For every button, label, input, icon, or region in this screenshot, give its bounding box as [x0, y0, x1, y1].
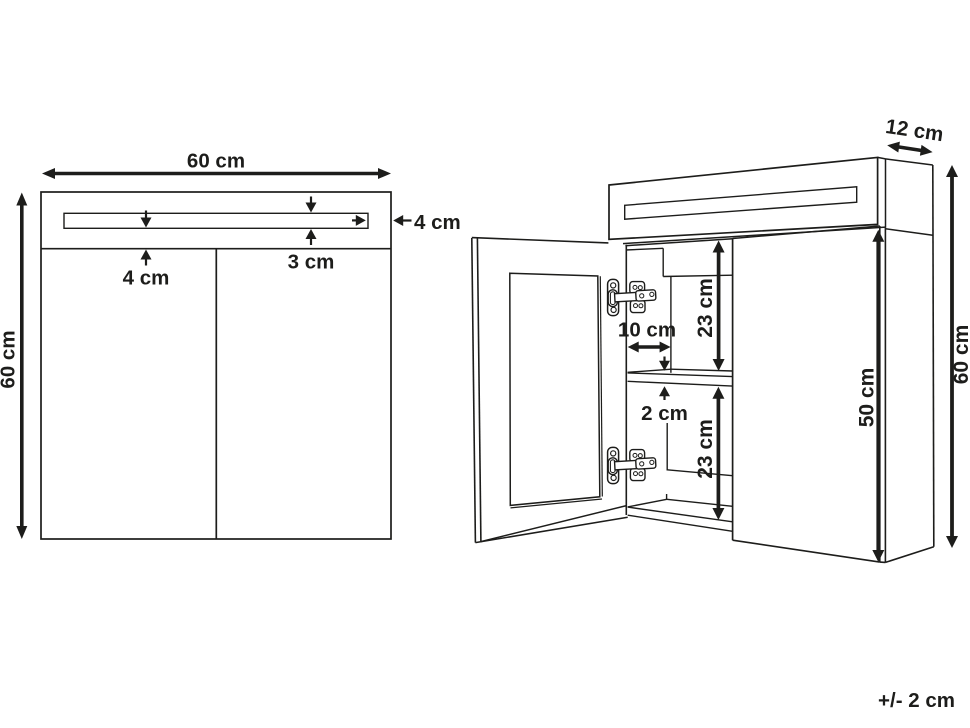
svg-text:2 cm: 2 cm — [641, 402, 688, 425]
svg-text:50 cm: 50 cm — [856, 368, 879, 428]
svg-text:60 cm: 60 cm — [187, 150, 245, 173]
svg-text:23 cm: 23 cm — [694, 419, 717, 479]
svg-text:+/- 2 cm: +/- 2 cm — [878, 689, 955, 712]
svg-text:60 cm: 60 cm — [0, 330, 20, 388]
svg-text:4 cm: 4 cm — [123, 267, 170, 290]
svg-text:23 cm: 23 cm — [694, 278, 717, 338]
svg-text:10 cm: 10 cm — [618, 319, 676, 342]
svg-text:3 cm: 3 cm — [288, 251, 335, 274]
svg-text:60 cm: 60 cm — [950, 325, 970, 385]
svg-text:4 cm: 4 cm — [414, 211, 461, 234]
